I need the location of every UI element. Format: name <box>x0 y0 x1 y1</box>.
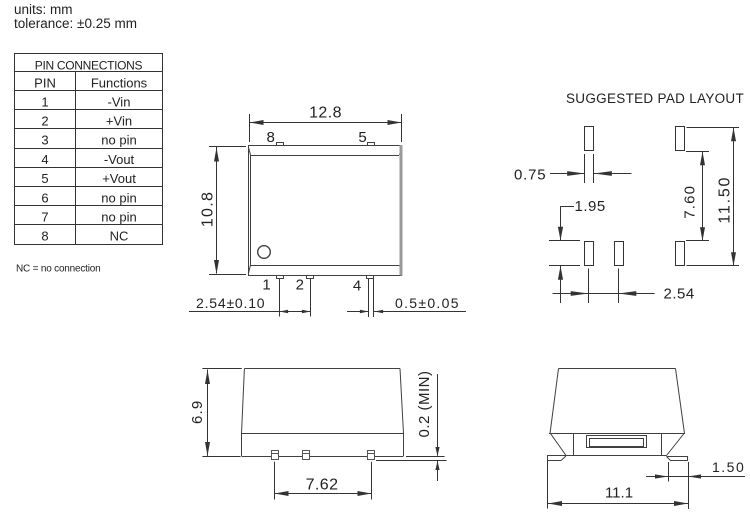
svg-text:12.8: 12.8 <box>309 104 342 121</box>
svg-text:3: 3 <box>41 133 48 148</box>
svg-text:1.95: 1.95 <box>575 198 606 215</box>
svg-text:no pin: no pin <box>101 210 136 225</box>
svg-text:10.8: 10.8 <box>199 191 216 227</box>
svg-text:2.54: 2.54 <box>664 286 695 303</box>
svg-text:8: 8 <box>41 229 48 244</box>
svg-text:5: 5 <box>358 129 366 146</box>
svg-text:5: 5 <box>41 171 48 186</box>
svg-text:tolerance: ±0.25 mm: tolerance: ±0.25 mm <box>14 16 137 31</box>
svg-text:7.62: 7.62 <box>306 476 339 493</box>
svg-text:6.9: 6.9 <box>189 400 206 424</box>
svg-text:+Vin: +Vin <box>106 114 132 129</box>
svg-text:8: 8 <box>267 129 275 146</box>
svg-text:units: mm: units: mm <box>14 2 73 17</box>
svg-text:0.75: 0.75 <box>514 167 546 184</box>
svg-text:4: 4 <box>41 152 48 167</box>
svg-text:no pin: no pin <box>101 133 136 148</box>
svg-text:11.1: 11.1 <box>605 485 633 502</box>
svg-text:7: 7 <box>41 210 48 225</box>
svg-text:2: 2 <box>296 276 304 293</box>
svg-text:+Vout: +Vout <box>102 171 136 186</box>
svg-text:PIN CONNECTIONS: PIN CONNECTIONS <box>35 58 143 72</box>
svg-text:0.2 (MIN): 0.2 (MIN) <box>416 370 433 437</box>
svg-text:2: 2 <box>41 114 48 129</box>
svg-text:6: 6 <box>41 190 48 205</box>
svg-text:1.50: 1.50 <box>712 459 745 475</box>
svg-text:PIN: PIN <box>34 75 56 90</box>
svg-text:4: 4 <box>353 278 361 295</box>
svg-text:NC = no connection: NC = no connection <box>16 264 101 275</box>
svg-text:1: 1 <box>262 276 270 293</box>
svg-text:-Vin: -Vin <box>108 94 131 109</box>
svg-text:0.5±0.05: 0.5±0.05 <box>395 295 460 311</box>
svg-text:7.60: 7.60 <box>682 185 699 219</box>
svg-text:2.54±0.10: 2.54±0.10 <box>196 295 265 311</box>
svg-text:SUGGESTED PAD LAYOUT: SUGGESTED PAD LAYOUT <box>566 91 744 106</box>
svg-text:1: 1 <box>41 94 48 109</box>
svg-text:11.50: 11.50 <box>717 176 734 224</box>
svg-text:Functions: Functions <box>91 75 148 90</box>
svg-text:no pin: no pin <box>101 190 136 205</box>
svg-text:-Vout: -Vout <box>104 152 135 167</box>
svg-text:NC: NC <box>110 229 129 244</box>
